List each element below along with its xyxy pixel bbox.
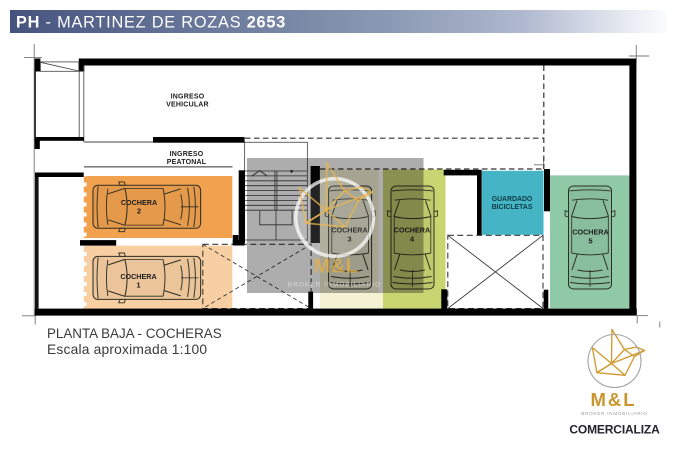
svg-text:COCHERA: COCHERA (572, 227, 608, 236)
svg-text:INGRESO: INGRESO (171, 94, 205, 101)
svg-text:Escala aproximada 1:100: Escala aproximada 1:100 (47, 342, 207, 357)
svg-text:VEHICULAR: VEHICULAR (166, 102, 209, 109)
svg-text:M&L: M&L (590, 389, 636, 410)
svg-text:2: 2 (137, 207, 141, 216)
svg-text:M&L: M&L (314, 256, 359, 278)
svg-text:PEATONAL: PEATONAL (167, 159, 207, 166)
svg-text:BROKER INMOBILIARIO: BROKER INMOBILIARIO (581, 411, 647, 416)
svg-text:PH - MARTINEZ DE ROZAS 2653: PH - MARTINEZ DE ROZAS 2653 (16, 14, 286, 32)
svg-text:INGRESO: INGRESO (170, 151, 204, 158)
svg-text:COMERCIALIZA: COMERCIALIZA (569, 423, 660, 437)
svg-text:BROKER INMOBILIARIO: BROKER INMOBILIARIO (288, 282, 381, 289)
svg-text:BICICLETAS: BICICLETAS (492, 204, 533, 211)
svg-text:GUARDADO: GUARDADO (492, 196, 533, 203)
svg-text:PLANTA BAJA - COCHERAS: PLANTA BAJA - COCHERAS (47, 326, 222, 341)
